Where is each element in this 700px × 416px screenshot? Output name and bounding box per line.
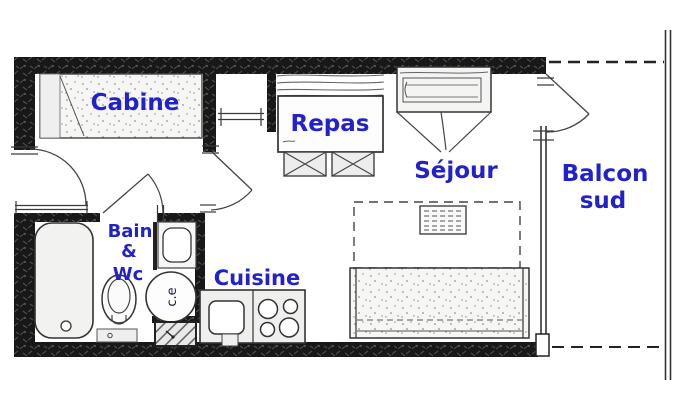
wall-stub-repas [267,74,276,132]
room-label-repas: Repas [291,111,370,137]
water-heater-label: c.e [165,287,180,306]
wall-left-upper [14,57,35,150]
wall-cabine-right [203,74,216,152]
fold-bed-icon [397,67,491,112]
stove-burner-icon [284,300,298,314]
floor-plan-drawing: c.e Cabine Repas Séjour Balcon sud Cuisi… [0,0,700,416]
cabine-door-arc [211,190,252,210]
balcony-door-leaf [546,74,589,114]
sofa-bed-icon [350,268,529,338]
sejour-furniture [350,202,529,338]
sink-faucet [222,334,238,346]
room-label-sejour: Séjour [414,158,498,184]
room-label-balcon-sud: sud [580,188,627,214]
room-label-wc: Wc [113,264,144,285]
fold-bed-swing-lines [397,112,491,152]
bathroom-door-leaf [103,174,148,213]
wall-bottom [14,342,538,357]
stove-burner-icon [261,323,275,337]
wall-bath-top-left [35,213,100,222]
washbasin-icon [163,228,191,262]
entrance-door-arc [30,149,86,205]
bath-step-icon [97,329,137,342]
balcony-door-arc [546,114,589,132]
cabine-door-leaf [212,152,252,190]
bathtub-drain [61,321,71,331]
room-label-bain-amp: & [121,241,137,262]
stove-burner-icon [280,318,299,337]
bed-pillow-icon [40,74,60,138]
kitchen-fixtures [200,290,305,346]
stove-burner-icon [259,300,278,319]
bathroom-door-arc [148,174,163,213]
room-label-cabine: Cabine [91,90,180,116]
room-label-bain: Bain [108,221,153,242]
floor-plan-page: c.e Cabine Repas Séjour Balcon sud Cuisi… [0,0,700,416]
bench-icon [277,75,384,96]
kitchen-sink-icon [209,301,244,334]
window-end-cap [536,334,549,356]
room-label-balcon: Balcon [562,161,649,187]
bath-window-arrow-dot [171,335,174,338]
wall-washbasin-partition [153,222,157,270]
room-label-cuisine: Cuisine [214,266,300,290]
wall-left-lower [14,213,35,345]
bath-window-icon [155,322,196,346]
